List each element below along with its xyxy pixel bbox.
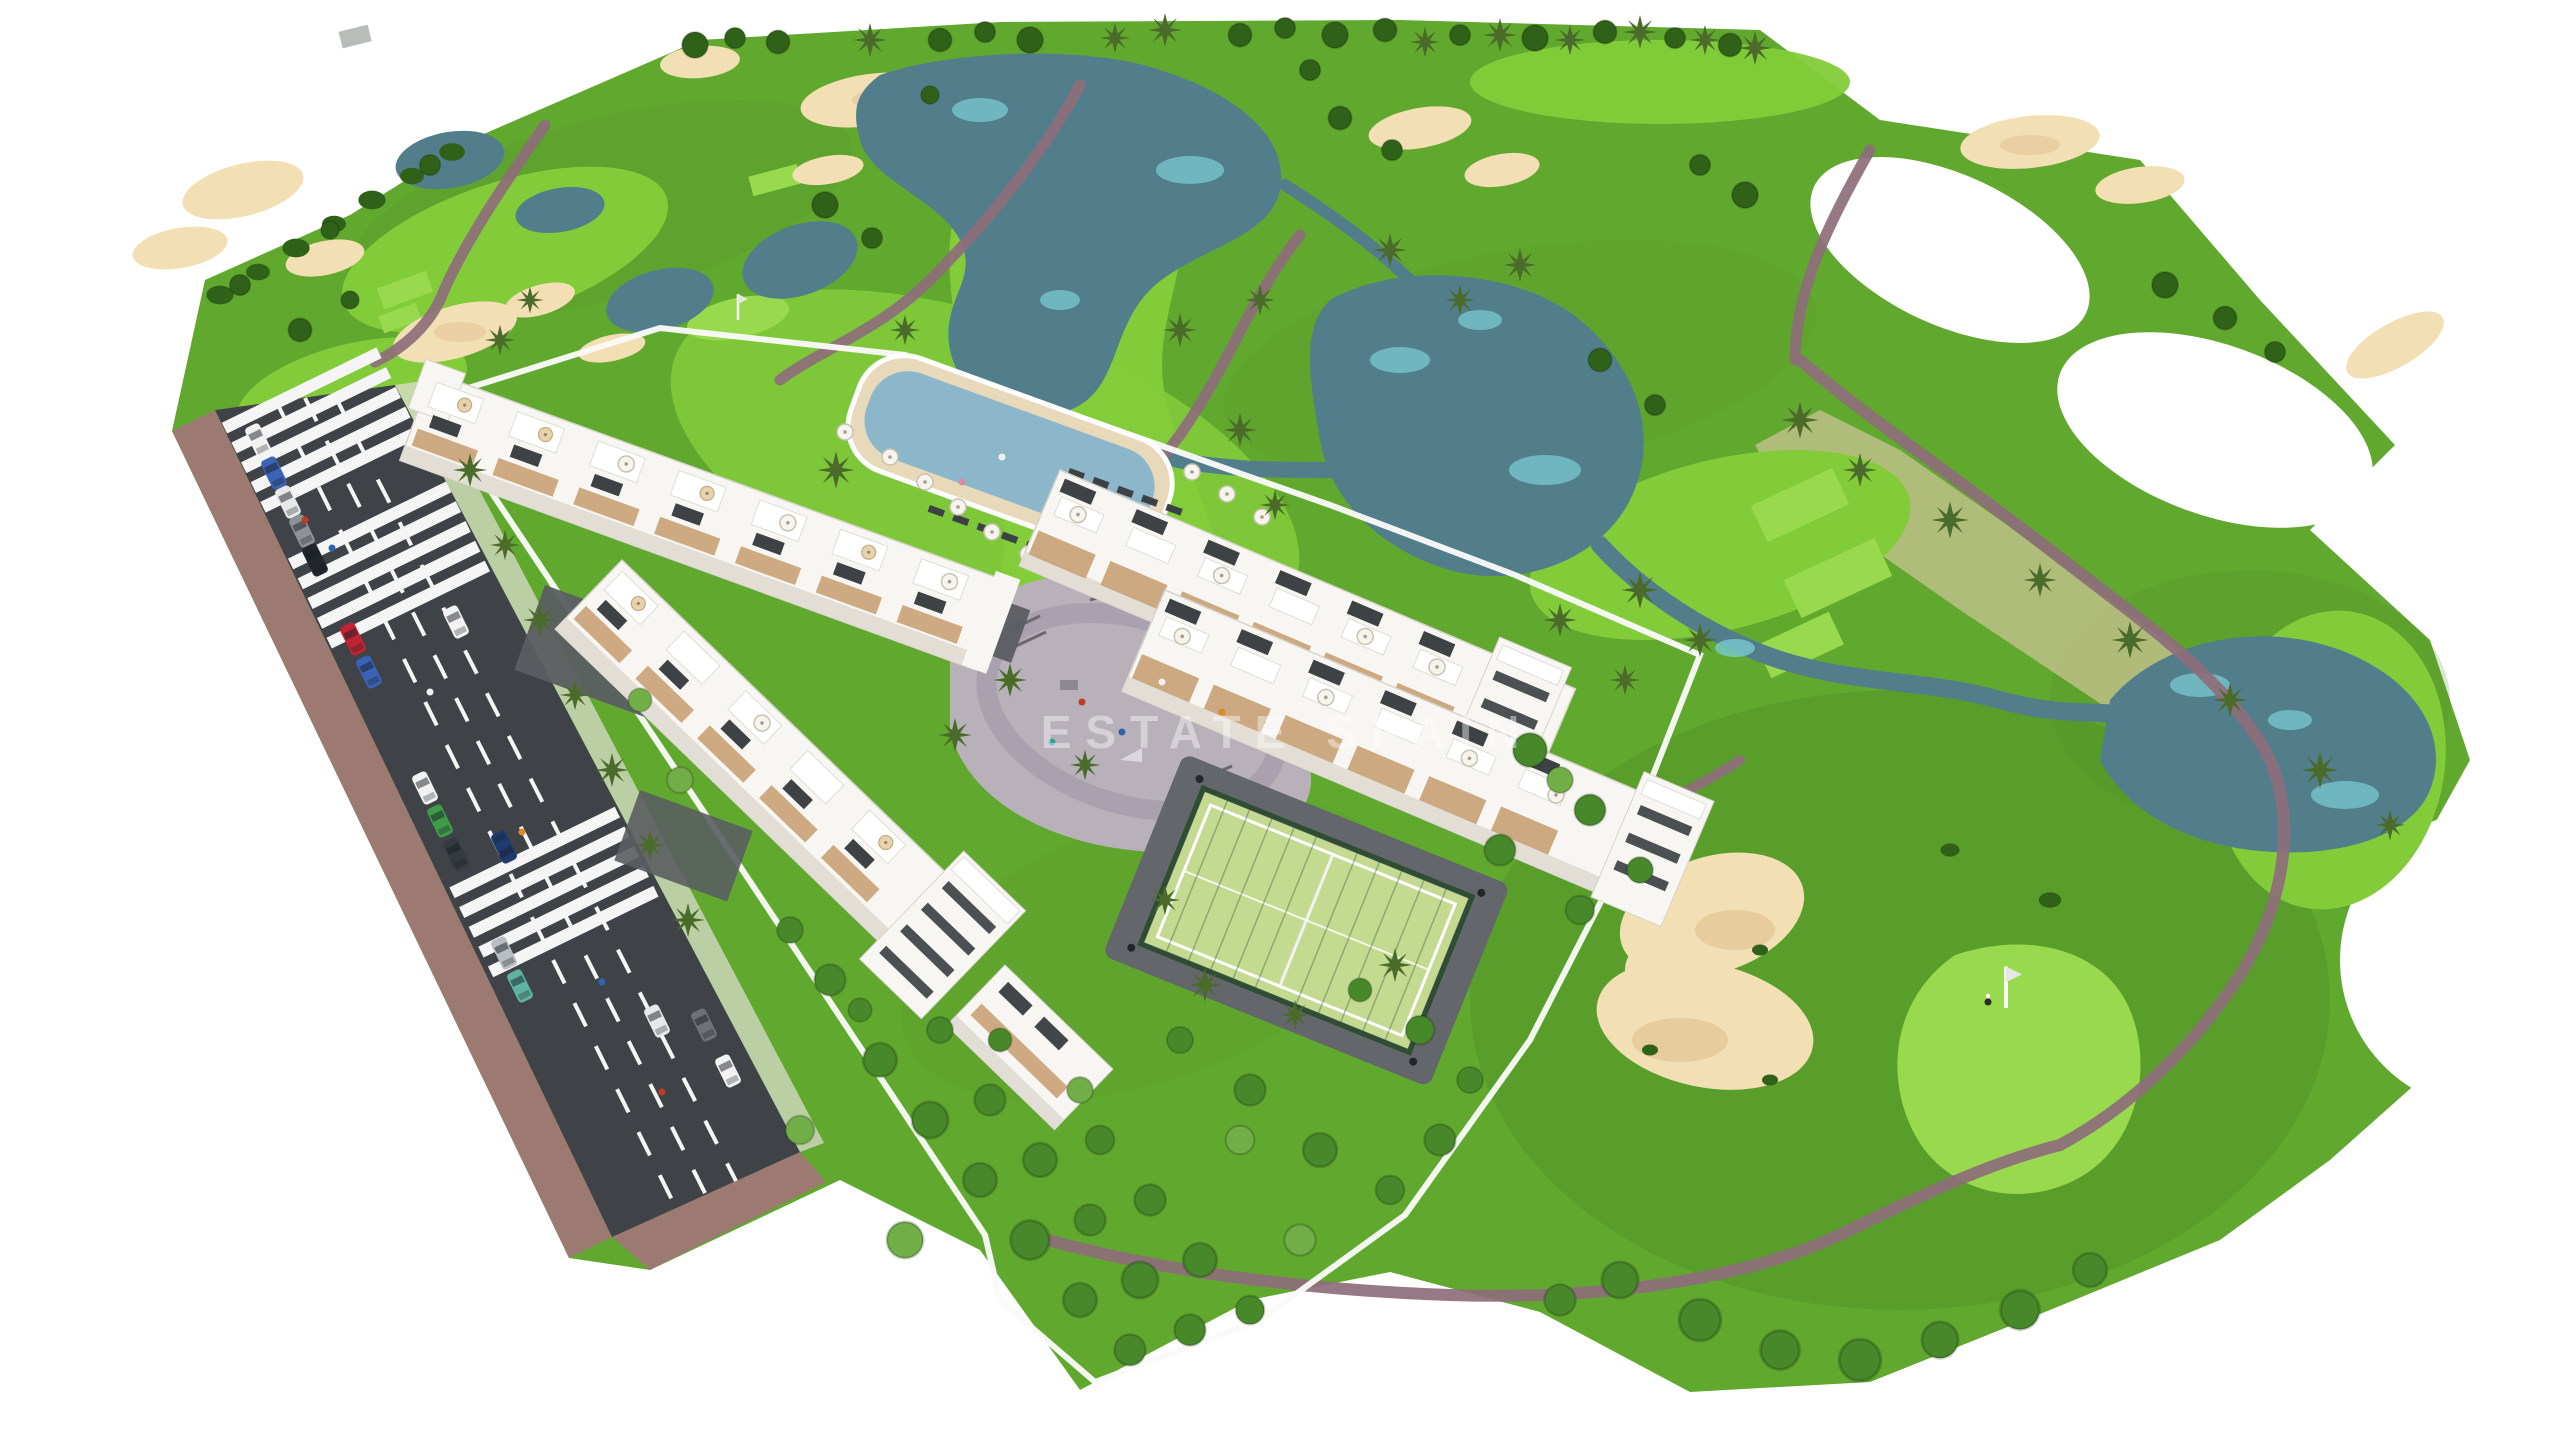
site-plan-render: ESTATE SPAIN xyxy=(0,0,2560,1439)
golfer xyxy=(1985,999,1992,1006)
maintenance-shed xyxy=(339,25,372,49)
render-canvas: ESTATE SPAIN xyxy=(0,0,2560,1439)
watermark-text: ESTATE SPAIN xyxy=(1041,706,1534,758)
